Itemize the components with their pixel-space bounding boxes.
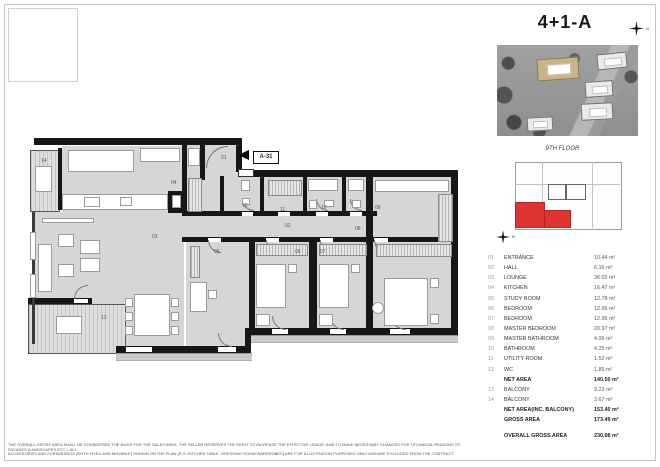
- row-area: 20.97 m²: [594, 326, 652, 332]
- nightstand: [288, 264, 297, 273]
- door-gap: [218, 347, 236, 352]
- row-area: 4.25 m²: [594, 346, 652, 352]
- row-name: BATHROOM: [504, 346, 594, 352]
- chair: [125, 312, 133, 321]
- wall: [220, 176, 224, 211]
- balcony-table: [56, 316, 82, 334]
- table-row: 07BEDROOM12.96 m²: [488, 314, 652, 324]
- room-label-02: 02: [285, 224, 291, 229]
- desk: [190, 282, 207, 312]
- disclaimer-line-2: ACCESSORIES AND FURNISHINGS (BOTH FIXED …: [8, 452, 464, 457]
- sofa: [38, 244, 52, 292]
- room-label-03: 03: [152, 235, 158, 240]
- table-row: 12WC1.89 m²: [488, 365, 652, 375]
- row-name: KITCHEN: [504, 285, 594, 291]
- row-number: 14: [488, 397, 504, 403]
- sink: [352, 200, 361, 208]
- wall: [342, 176, 346, 211]
- table-row: GROSS AREA173.49 m²: [488, 415, 652, 425]
- window: [30, 274, 36, 298]
- table-row: 08MASTER BEDROOM20.97 m²: [488, 324, 652, 334]
- building: [527, 116, 554, 131]
- window-gap: [126, 347, 152, 352]
- window-sill: [116, 353, 252, 361]
- row-area: 1.52 m²: [594, 356, 652, 362]
- row-name: STUDY ROOM: [504, 296, 594, 302]
- door-gap: [74, 299, 88, 303]
- sink: [120, 197, 132, 206]
- wall: [303, 176, 307, 211]
- row-name: NET AREA(INC. BALCONY): [504, 407, 594, 413]
- tv-console: [42, 218, 94, 223]
- logo-box: [8, 8, 78, 82]
- row-area: 140.50 m²: [594, 377, 652, 383]
- kitchen-counter: [62, 194, 168, 210]
- area-table: 01ENTRANCE10.44 m²02HALL6.16 m²03LOUNGE3…: [488, 253, 652, 442]
- shaft-label-box: [238, 169, 254, 177]
- row-area: 230.98 m²: [594, 433, 652, 439]
- row-name: UTILITY ROOM: [504, 356, 594, 362]
- north-letter: N: [646, 26, 649, 31]
- building: [596, 51, 628, 70]
- floor-label: 9TH FLOOR: [505, 146, 620, 152]
- kitchen-island: [68, 150, 134, 172]
- dining-table: [134, 294, 170, 336]
- row-name: LOUNGE: [504, 275, 594, 281]
- key-plan-unit-highlight: [515, 202, 545, 228]
- window-sill: [251, 335, 458, 343]
- toilet: [309, 200, 317, 209]
- building-highlight: [536, 57, 579, 82]
- row-area: 16.47 m²: [594, 285, 652, 291]
- bed: [256, 264, 286, 308]
- room-label-14: 14: [41, 159, 47, 164]
- chair: [125, 326, 133, 335]
- row-area: 4.06 m²: [594, 336, 652, 342]
- row-number: 03: [488, 275, 504, 281]
- row-name: BEDROOM: [504, 316, 594, 322]
- row-number: 10: [488, 346, 504, 352]
- bookshelf: [190, 246, 200, 278]
- bed: [319, 264, 349, 308]
- row-name: NET AREA: [504, 377, 594, 383]
- room-label-05: 05: [214, 250, 220, 255]
- room-label-09: 09: [375, 206, 381, 211]
- key-plan: [506, 158, 620, 232]
- row-area: 1.89 m²: [594, 367, 652, 373]
- shower: [348, 179, 364, 191]
- bathtub: [308, 179, 338, 191]
- room-label-07: 07: [320, 250, 326, 255]
- row-name: HALL: [504, 265, 594, 271]
- wall: [34, 138, 240, 145]
- row-number: 05: [488, 296, 504, 302]
- room-label-08: 08: [355, 227, 361, 232]
- disclaimer: THE OVERALL GROSS AREA SHALL BE CONSIDER…: [8, 443, 464, 457]
- wall: [200, 144, 205, 180]
- row-number: 09: [488, 336, 504, 342]
- row-name: WC: [504, 367, 594, 373]
- room-label-06: 06: [295, 250, 301, 255]
- building: [581, 102, 614, 121]
- row-number: 06: [488, 306, 504, 312]
- row-name: BALCONY: [504, 387, 594, 393]
- table-row: 02HALL6.16 m²: [488, 263, 652, 273]
- row-name: MASTER BEDROOM: [504, 326, 594, 332]
- row-number: 08: [488, 326, 504, 332]
- balcony-table: [35, 166, 52, 192]
- desk: [319, 314, 333, 326]
- coffee-table: [80, 258, 100, 272]
- table-row: 11UTILITY ROOM1.52 m²: [488, 354, 652, 364]
- row-area: 12.96 m²: [594, 306, 652, 312]
- counter: [140, 148, 180, 162]
- table-row: 01ENTRANCE10.44 m²: [488, 253, 652, 263]
- nightstand: [430, 314, 439, 324]
- nightstand: [351, 264, 360, 273]
- desk: [256, 314, 270, 326]
- row-area: 12.96 m²: [594, 316, 652, 322]
- wall: [238, 170, 458, 177]
- room-label-13: 13: [101, 316, 107, 321]
- page-title: 4+1-A: [495, 12, 635, 33]
- table-row: 13BALCONY9.23 m²: [488, 385, 652, 395]
- table-row: 06BEDROOM12.96 m²: [488, 304, 652, 314]
- table-row: 05STUDY ROOM12.78 m²: [488, 294, 652, 304]
- door-gap: [242, 212, 253, 216]
- key-plan-unit-highlight: [544, 210, 571, 228]
- chair: [171, 326, 179, 335]
- room-label-10: 10: [321, 206, 327, 211]
- row-area: 12.78 m²: [594, 296, 652, 302]
- unit-marker: A-31: [253, 151, 279, 164]
- key-plan-core: [566, 184, 586, 200]
- building: [584, 80, 613, 98]
- wardrobe: [438, 194, 453, 242]
- window: [30, 232, 36, 260]
- table-row: NET AREA(INC. BALCONY)153.40 m²: [488, 405, 652, 415]
- armchair: [58, 234, 74, 247]
- row-name: BEDROOM: [504, 306, 594, 312]
- row-area: 173.49 m²: [594, 417, 652, 423]
- toilet: [241, 180, 250, 191]
- shelving: [375, 180, 449, 192]
- door-gap: [350, 212, 362, 216]
- door-gap: [316, 212, 328, 216]
- floor-plan: A-31 01 02 03 04 05 06 07 08 09 10 11 12…: [22, 136, 462, 371]
- wall: [260, 176, 264, 211]
- door-gap: [390, 329, 410, 334]
- room-label-12: 12: [242, 204, 248, 209]
- row-number: 04: [488, 285, 504, 291]
- shaft-inner: [172, 195, 181, 208]
- satellite-image: [497, 45, 638, 136]
- row-name: ENTRANCE: [504, 255, 594, 261]
- bed: [384, 278, 428, 326]
- table-row: 04KITCHEN16.47 m²: [488, 283, 652, 293]
- washer-units: [268, 180, 302, 196]
- nightstand: [430, 278, 439, 288]
- room-label-01: 01: [221, 156, 227, 161]
- row-area: 10.44 m²: [594, 255, 652, 261]
- row-name: GROSS AREA: [504, 417, 594, 423]
- chair: [171, 298, 179, 307]
- row-area: 3.67 m²: [594, 397, 652, 403]
- row-number: 01: [488, 255, 504, 261]
- wardrobe: [188, 178, 202, 212]
- overall-row: OVERALL GROSS AREA 230.98 m²: [488, 431, 652, 441]
- chair: [208, 290, 217, 299]
- wall: [309, 242, 317, 328]
- wardrobe: [376, 244, 452, 257]
- armchair: [58, 264, 74, 277]
- row-name: OVERALL GROSS AREA: [504, 433, 594, 439]
- row-number: 13: [488, 387, 504, 393]
- floor-plan-sheet: A-31 01 02 03 04 05 06 07 08 09 10 11 12…: [0, 0, 660, 467]
- row-area: 6.16 m²: [594, 265, 652, 271]
- row-number: 02: [488, 265, 504, 271]
- table-row: 10BATHROOM4.25 m²: [488, 344, 652, 354]
- table-row: 09MASTER BATHROOM4.06 m²: [488, 334, 652, 344]
- row-area: 36.02 m²: [594, 275, 652, 281]
- table-row: 14BALCONY3.67 m²: [488, 395, 652, 405]
- stove: [84, 197, 100, 207]
- round-chair: [372, 302, 384, 314]
- row-number: 12: [488, 367, 504, 373]
- chair: [125, 298, 133, 307]
- shaft-box: [188, 148, 200, 166]
- unit-marker-arrow-icon: [238, 150, 249, 160]
- row-name: BALCONY: [504, 397, 594, 403]
- row-name: MASTER BATHROOM: [504, 336, 594, 342]
- row-number: 11: [488, 356, 504, 362]
- room-label-04: 04: [171, 181, 177, 186]
- key-plan-north-letter: N: [512, 234, 515, 239]
- wardrobe: [319, 244, 367, 256]
- wall: [249, 242, 255, 328]
- coffee-table: [80, 240, 100, 254]
- room-label-11: 11: [280, 208, 285, 213]
- key-plan-core: [548, 184, 566, 200]
- table-row: NET AREA140.50 m²: [488, 375, 652, 385]
- wall: [182, 237, 456, 242]
- row-area: 153.40 m²: [594, 407, 652, 413]
- row-area: 9.23 m²: [594, 387, 652, 393]
- chair: [171, 312, 179, 321]
- table-row: 03LOUNGE36.02 m²: [488, 273, 652, 283]
- row-number: 07: [488, 316, 504, 322]
